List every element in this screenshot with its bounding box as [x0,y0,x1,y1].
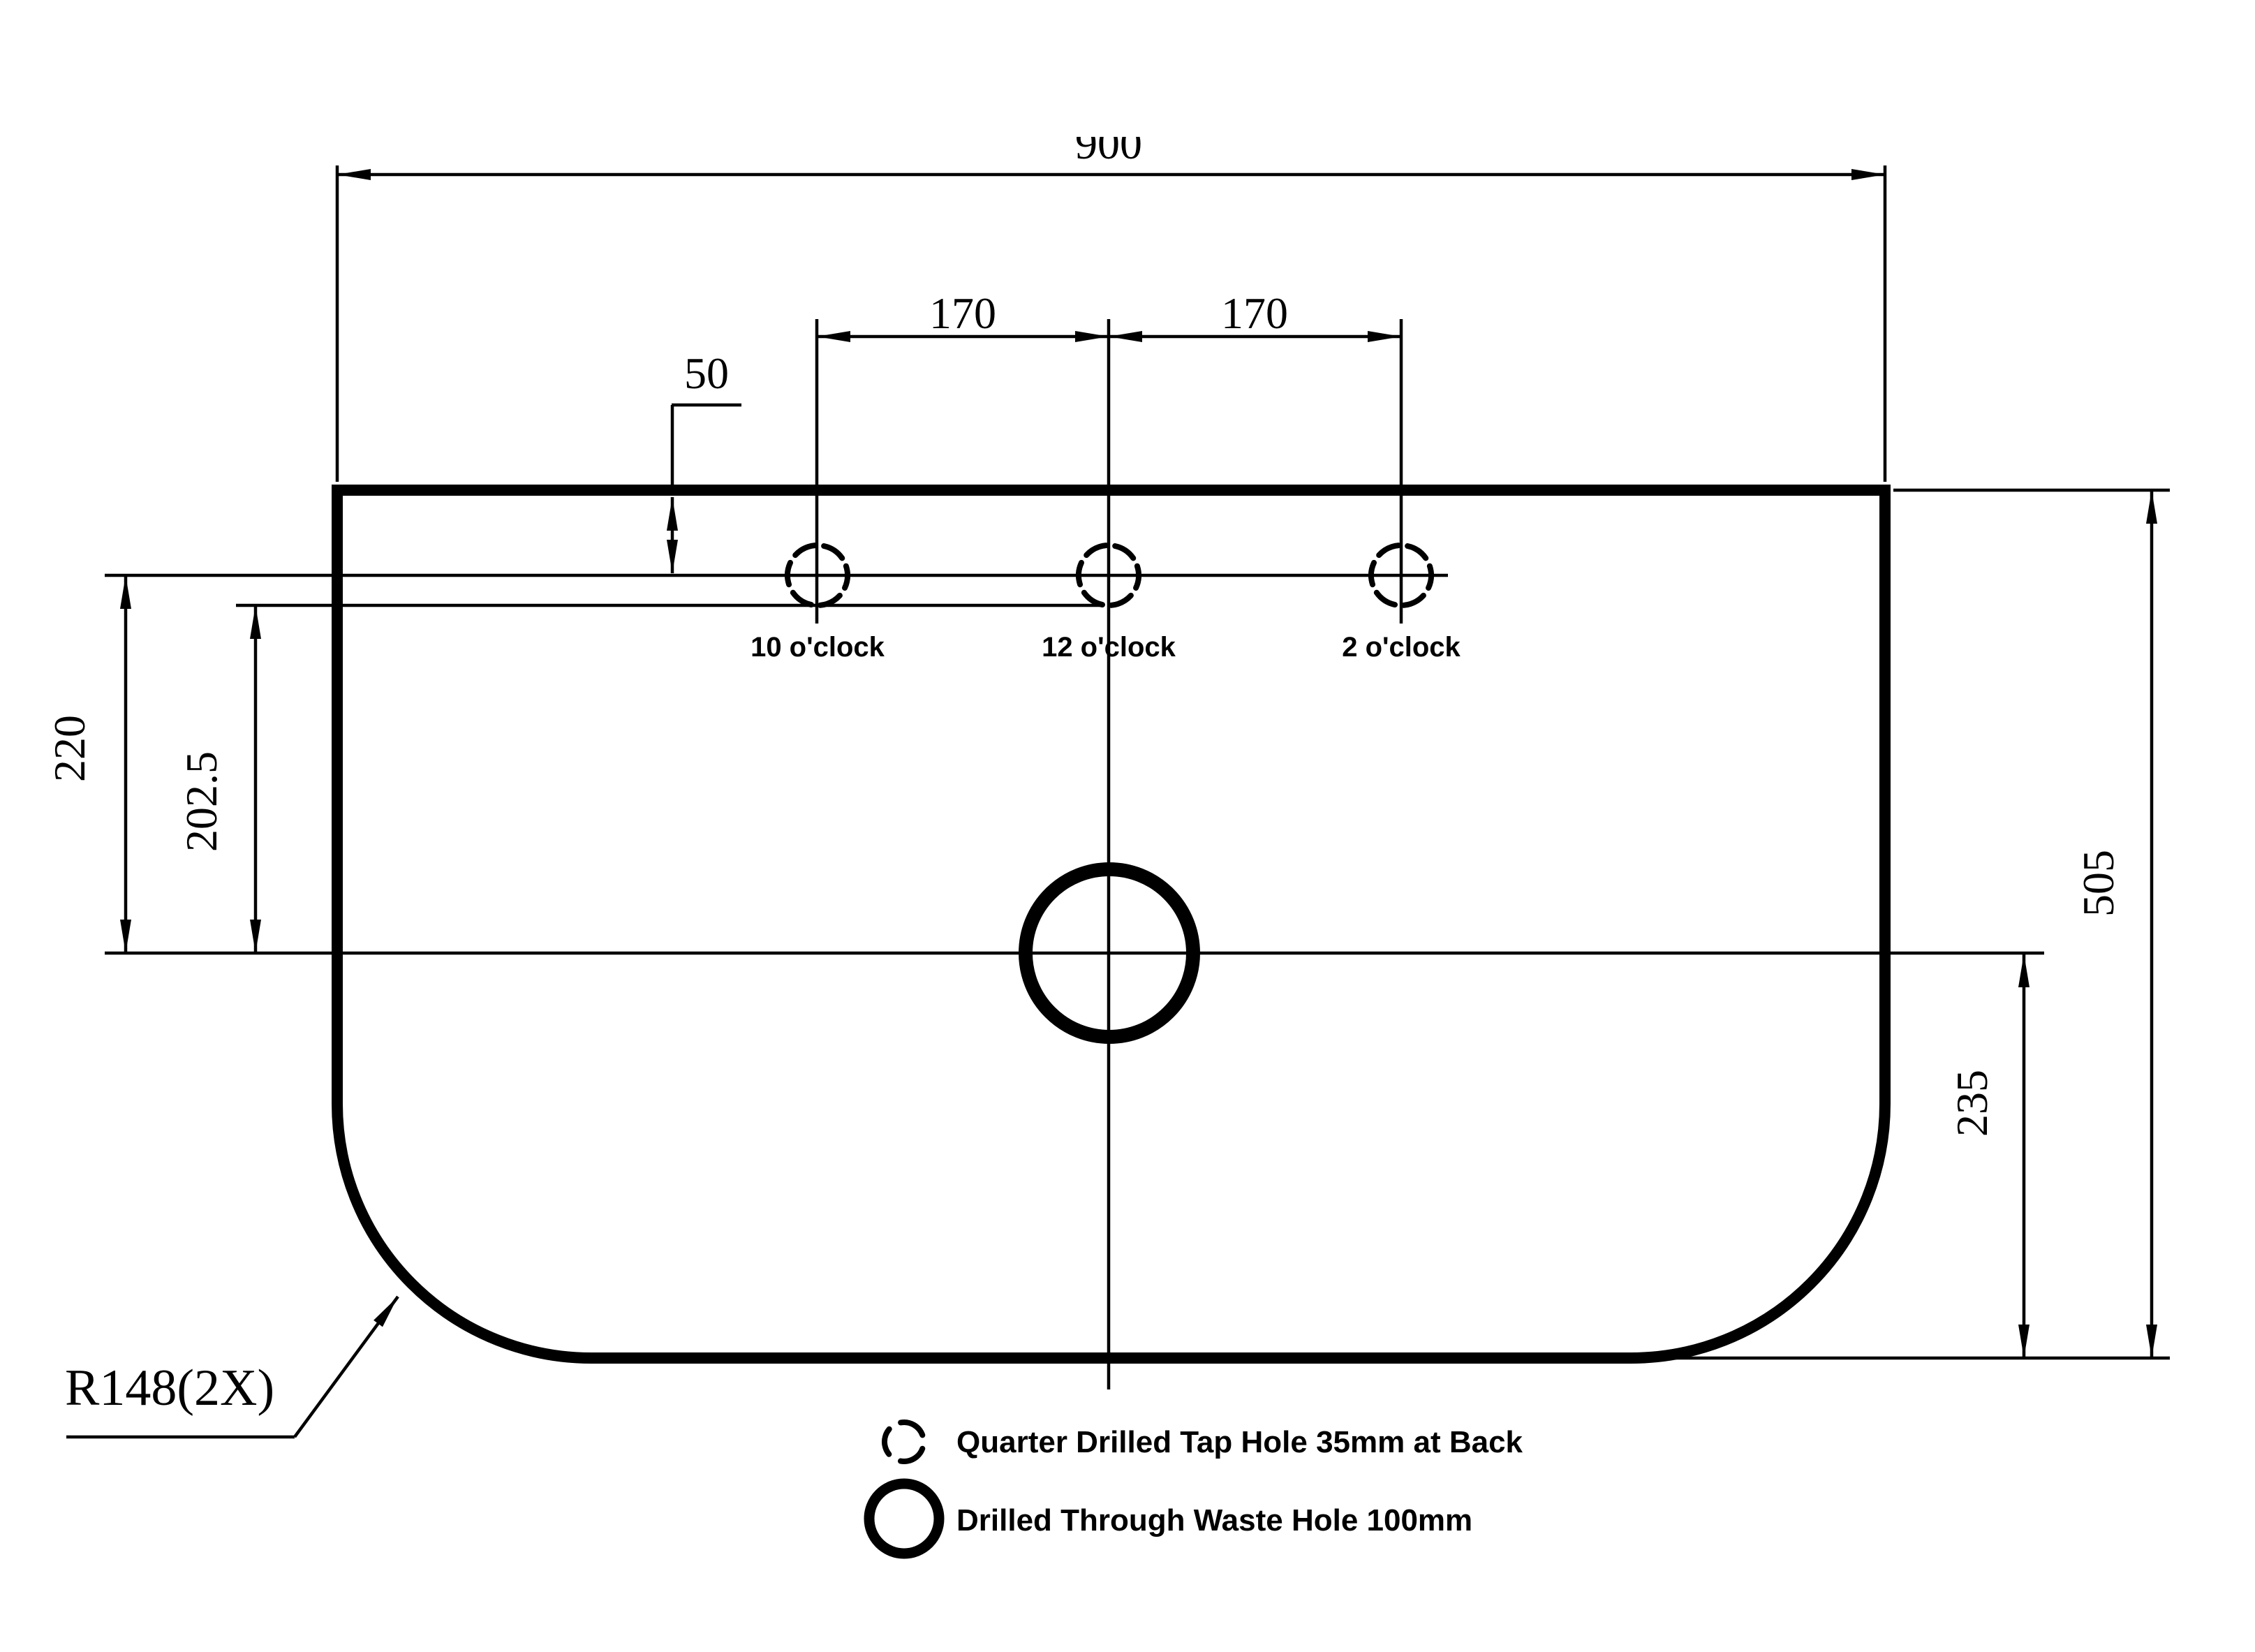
dim-overall-width: 900 [337,84,1885,482]
dim-value-235: 235 [1947,1070,1997,1137]
corner-radius-text: R148(2X) [65,1359,274,1417]
dim-value-505: 505 [2073,850,2123,917]
dim-value-202-5: 202.5 [177,751,226,852]
dim-overall-depth: 505 [1676,490,2170,1358]
dim-tap-offset: 50 [672,348,741,573]
dim-back-to-waste: 220 [45,575,126,953]
dim-value-170-right: 170 [1221,288,1288,338]
legend-label-tap-hole: Quarter Drilled Tap Hole 35mm at Back [956,1425,1523,1459]
legend-label-waste-hole: Drilled Through Waste Hole 100mm [956,1503,1472,1537]
vanity-top-technical-drawing: 900 170 170 50 220 202.5 505 235 [0,0,2255,1652]
solid-circle-icon [869,1484,939,1554]
dim-waste-to-front: 235 [1947,954,2024,1358]
leader-arrow [295,1297,398,1437]
dim-value-170-left: 170 [929,288,996,338]
legend: Quarter Drilled Tap Hole 35mm at Back Dr… [869,1419,1523,1554]
corner-radius-callout: R148(2X) [65,1297,398,1437]
tap-hole-label-12: 12 o'clock [1042,632,1176,663]
dim-value-50: 50 [684,348,729,398]
countertop-outline [337,490,1885,1358]
dashed-circle-icon [882,1419,927,1465]
tap-hole-label-2: 2 o'clock [1342,632,1461,663]
dim-value-220: 220 [45,715,94,782]
tap-holes: 10 o'clock 12 o'clock 2 o'clock [751,538,1461,663]
drawing-sheet: 900 170 170 50 220 202.5 505 235 [0,0,2255,1652]
clip-artifact [1026,84,1194,137]
dim-tapbottom-to-waste: 202.5 [177,605,256,953]
tap-hole-label-10: 10 o'clock [751,632,885,663]
